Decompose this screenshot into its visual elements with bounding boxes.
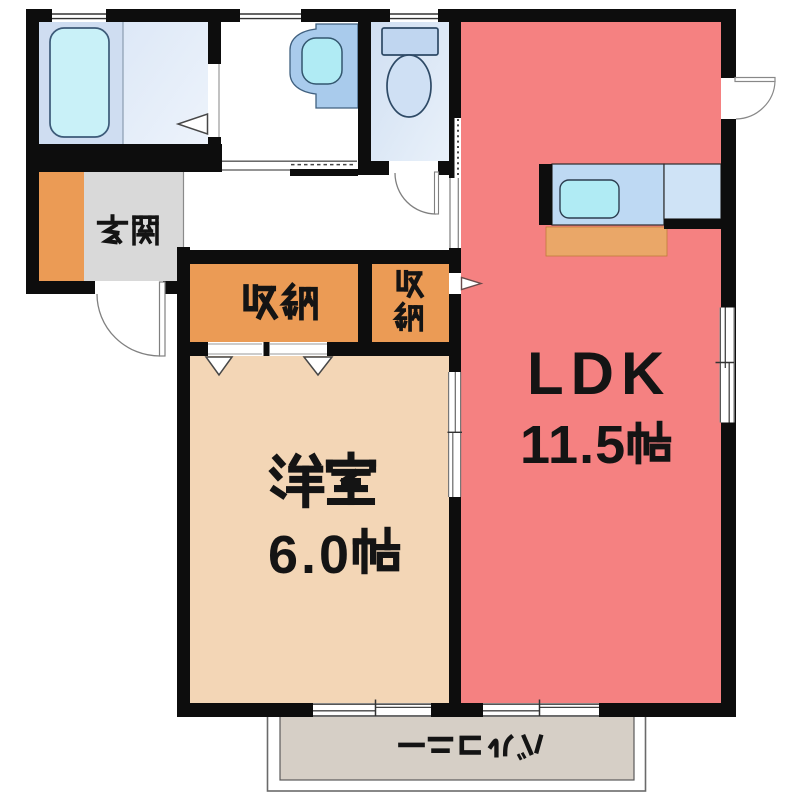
- svg-text:6.0: 6.0: [268, 525, 352, 585]
- svg-text:LDK: LDK: [527, 340, 671, 407]
- svg-text:11.5: 11.5: [520, 415, 626, 475]
